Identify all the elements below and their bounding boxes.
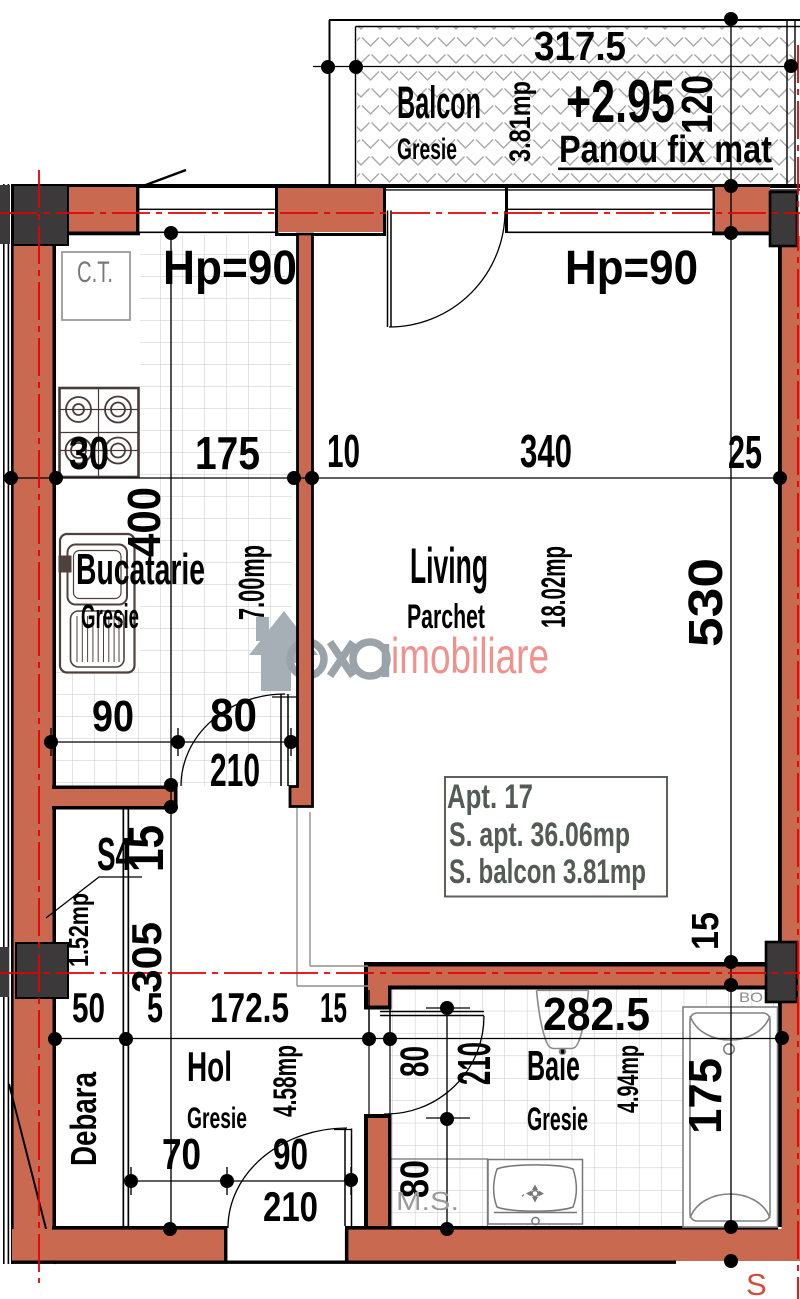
svg-text:18.02mp: 18.02mp — [535, 546, 573, 628]
svg-text:S: S — [746, 1267, 767, 1299]
svg-text:90: 90 — [92, 692, 134, 741]
svg-text:172.5: 172.5 — [210, 984, 289, 1031]
svg-text:Living: Living — [410, 538, 488, 594]
svg-text:15: 15 — [320, 984, 347, 1031]
svg-text:S. apt. 36.06mp: S. apt. 36.06mp — [449, 816, 630, 854]
svg-text:C.T.: C.T. — [77, 256, 113, 289]
svg-text:90: 90 — [273, 1130, 308, 1179]
svg-text:340: 340 — [520, 425, 572, 477]
svg-text:80: 80 — [393, 1046, 437, 1077]
svg-text:BO: BO — [739, 989, 763, 1005]
svg-text:Debara: Debara — [63, 1071, 104, 1166]
svg-text:imobiliare: imobiliare — [391, 628, 549, 684]
svg-text:10: 10 — [327, 425, 360, 477]
svg-text:25: 25 — [728, 426, 762, 478]
svg-text:15: 15 — [118, 825, 174, 872]
svg-text:3.81mp: 3.81mp — [504, 81, 537, 162]
svg-text:305: 305 — [123, 922, 170, 993]
svg-text:5: 5 — [147, 984, 163, 1031]
svg-text:30: 30 — [69, 427, 109, 479]
svg-text:+2.95: +2.95 — [566, 68, 675, 135]
svg-text:210: 210 — [263, 1183, 318, 1230]
svg-text:Hp=90: Hp=90 — [565, 242, 698, 295]
svg-text:80: 80 — [210, 689, 257, 741]
svg-text:1.52mp: 1.52mp — [63, 893, 94, 967]
svg-text:Panou fix mat: Panou fix mat — [559, 129, 772, 171]
svg-text:4.58mp: 4.58mp — [267, 1045, 303, 1117]
svg-text:Hol: Hol — [187, 1043, 232, 1090]
svg-text:15: 15 — [685, 912, 727, 950]
svg-text:Parchet: Parchet — [407, 598, 485, 636]
svg-text:210: 210 — [448, 1042, 500, 1085]
svg-text:Hp=90: Hp=90 — [163, 242, 297, 295]
svg-text:M.S.: M.S. — [396, 1186, 459, 1216]
svg-text:Gresie: Gresie — [81, 598, 139, 636]
svg-text:Apt. 17: Apt. 17 — [447, 778, 533, 816]
svg-text:282.5: 282.5 — [543, 988, 650, 1040]
svg-text:7.00mp: 7.00mp — [231, 545, 272, 620]
svg-text:317.5: 317.5 — [534, 23, 626, 69]
svg-text:50: 50 — [72, 984, 105, 1031]
svg-text:175: 175 — [679, 1058, 731, 1134]
svg-text:175: 175 — [195, 427, 260, 479]
svg-text:4.94mp: 4.94mp — [612, 1045, 645, 1113]
svg-text:Baie: Baie — [527, 1042, 580, 1089]
svg-text:Gresie: Gresie — [397, 133, 457, 166]
svg-text:Bucatarie: Bucatarie — [76, 545, 205, 594]
svg-text:Gresie: Gresie — [527, 1101, 588, 1137]
svg-text:Balcon: Balcon — [397, 77, 481, 128]
svg-text:120: 120 — [673, 75, 722, 134]
svg-text:530: 530 — [680, 558, 733, 647]
svg-text:S. balcon 3.81mp: S. balcon 3.81mp — [449, 853, 646, 891]
svg-text:70: 70 — [162, 1130, 201, 1179]
svg-text:210: 210 — [210, 744, 260, 796]
